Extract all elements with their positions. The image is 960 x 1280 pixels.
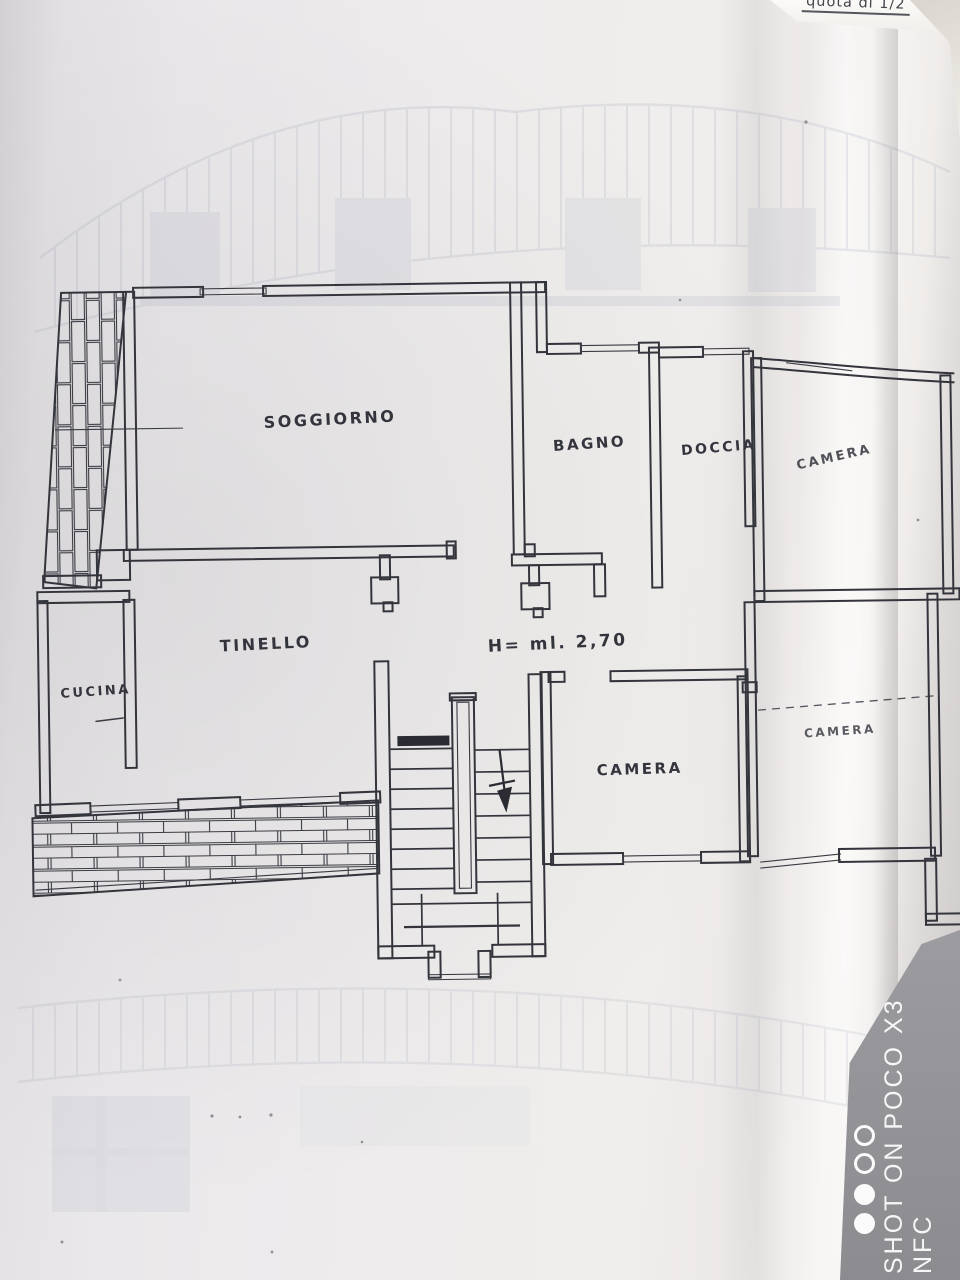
walls-camera-top-right: [751, 355, 959, 602]
height-note: H= ml. 2,70: [487, 630, 628, 657]
floor-plan-drawing: SOGGIORNO BAGNO DOCCIA CAMERA TINELLO CU…: [0, 0, 960, 1280]
plan-ink: SOGGIORNO BAGNO DOCCIA CAMERA TINELLO CU…: [25, 276, 960, 985]
stair-direction-arrow: [489, 750, 516, 813]
room-label-bagno: BAGNO: [552, 432, 626, 455]
corner-note: quota di 1/2: [802, 0, 910, 16]
brick-terrace: [32, 800, 379, 896]
camera-watermark-text: SHOT ON POCO X3 NFC: [880, 942, 938, 1274]
staircase: [374, 659, 545, 980]
brick-hatch-top-left: [40, 292, 130, 589]
room-label-camera-top-right: CAMERA: [795, 442, 873, 474]
watermark-dot-solid-1: [854, 1184, 875, 1205]
watermark-dot-hollow-1: [854, 1125, 875, 1146]
stair-landing-edge: [397, 735, 449, 746]
room-label-tinello: TINELLO: [219, 632, 312, 655]
room-label-camera-center: CAMERA: [596, 759, 682, 780]
photo-of-floor-plan: SOGGIORNO BAGNO DOCCIA CAMERA TINELLO CU…: [0, 0, 960, 1280]
room-label-camera-right: CAMERA: [804, 722, 877, 741]
watermark-dot-hollow-2: [854, 1153, 875, 1174]
room-label-cucina: CUCINA: [60, 682, 131, 702]
bleedthrough-bottom: [18, 988, 872, 1212]
room-label-soggiorno: SOGGIORNO: [263, 407, 397, 432]
watermark-dot-solid-2: [854, 1213, 875, 1234]
stair-treads: [390, 747, 533, 946]
walls-corridor: [124, 541, 457, 615]
walls-bagno-doccia: [509, 341, 757, 617]
walls-cucina-tinello: [32, 587, 380, 816]
walls-camera-right: [741, 593, 960, 927]
